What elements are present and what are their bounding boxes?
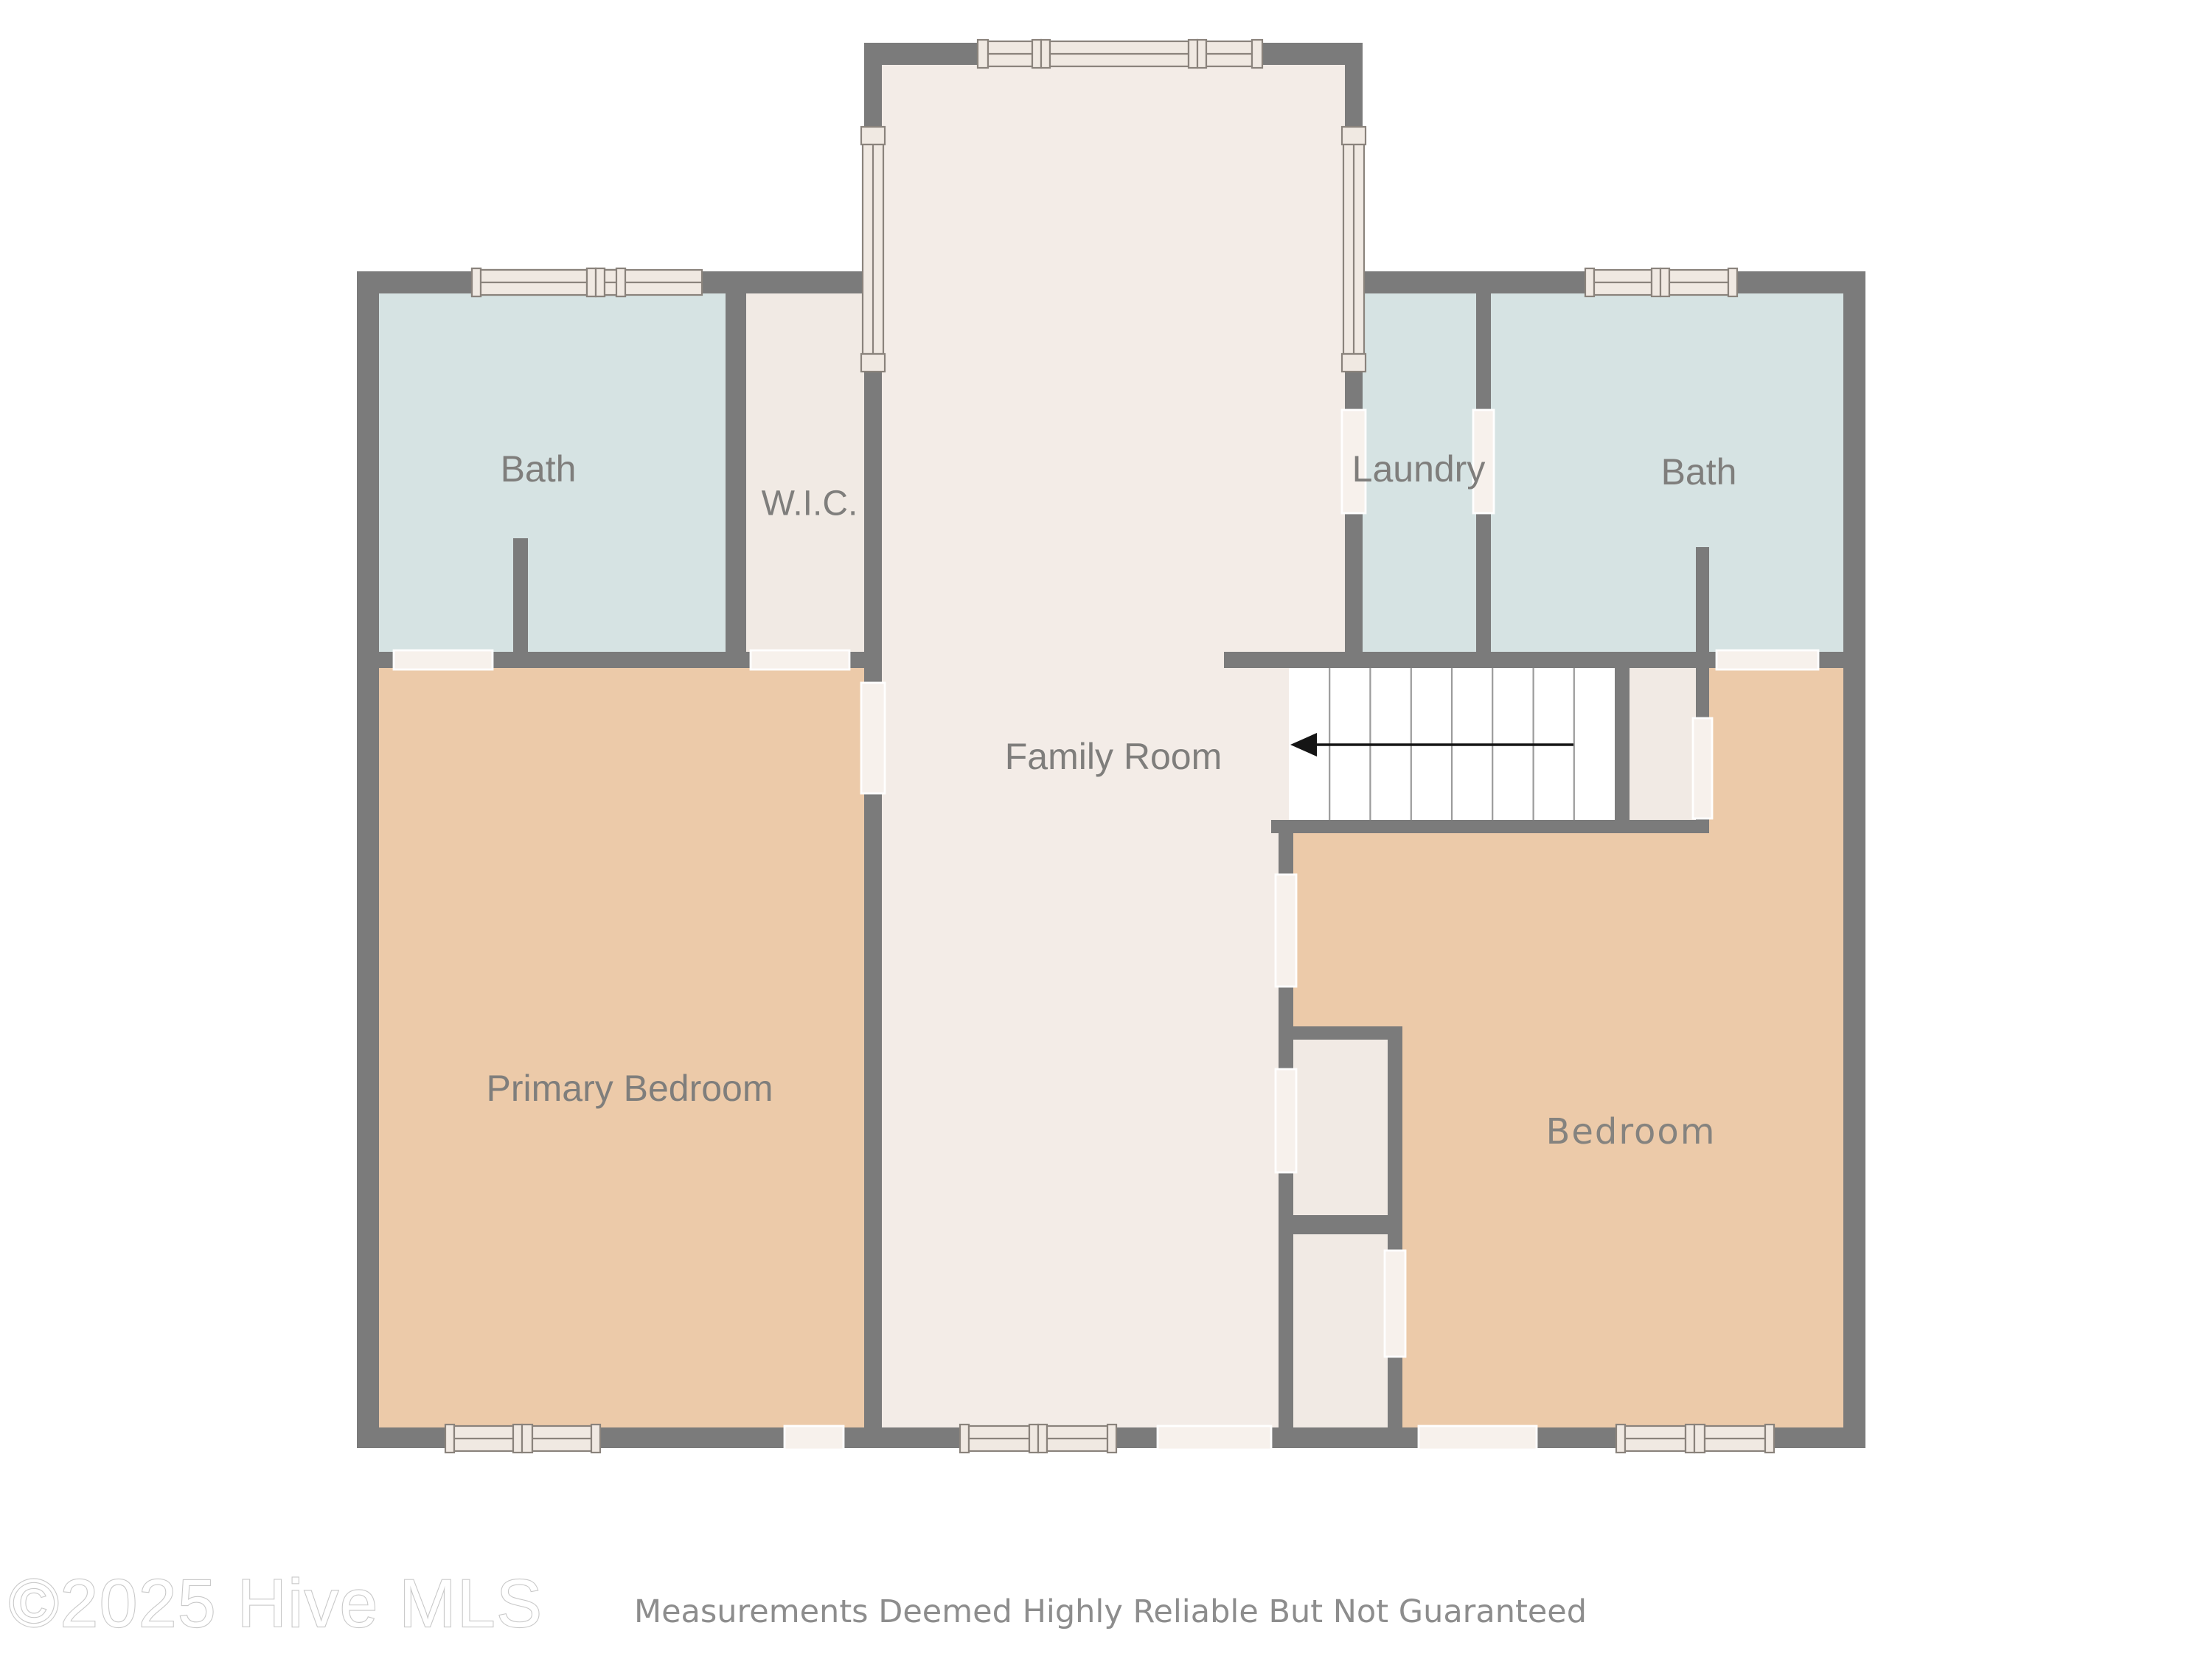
closet-upper-floor: [1293, 1040, 1388, 1215]
room-label-bath-right: Bath: [1661, 451, 1737, 493]
floor-plan-canvas: Bath W.I.C. Laundry Bath Family Room Pri…: [0, 0, 2212, 1659]
room-label-primary-bedroom: Primary Bedroom: [487, 1068, 773, 1109]
room-label-family-room: Family Room: [1005, 736, 1222, 777]
door-opening: [1385, 1251, 1405, 1357]
window: [445, 1425, 600, 1453]
wall-segment: [1696, 547, 1709, 652]
closet-lower-floor: [1293, 1234, 1388, 1427]
wall-segment: [1224, 652, 1717, 668]
wall-segment: [1271, 820, 1709, 833]
wall-segment: [1279, 1026, 1402, 1040]
bedroom-floor: [1709, 668, 1843, 1427]
window: [861, 127, 885, 372]
wic-floor: [746, 293, 864, 652]
wall-segment: [1279, 1215, 1402, 1234]
wall-segment: [1388, 1026, 1402, 1427]
floor-plan-page: Bath W.I.C. Laundry Bath Family Room Pri…: [0, 0, 2212, 1659]
door-opening: [1276, 1069, 1296, 1172]
mls-watermark: ©2025 Hive MLS: [9, 1566, 543, 1641]
door-opening: [785, 1426, 844, 1450]
wall-segment: [1843, 271, 1865, 1448]
wall-segment: [1818, 652, 1843, 668]
stair-landing-floor: [1630, 668, 1696, 820]
door-opening: [1276, 874, 1296, 987]
window: [1616, 1425, 1774, 1453]
door-opening: [394, 650, 493, 669]
door-opening: [1158, 1426, 1271, 1450]
measurement-disclaimer: Measurements Deemed Highly Reliable But …: [634, 1593, 1587, 1630]
window: [1585, 268, 1737, 296]
wall-segment: [726, 293, 746, 652]
wall-segment: [513, 538, 528, 652]
door-opening: [1717, 650, 1818, 669]
room-label-bedroom: Bedroom: [1545, 1111, 1716, 1152]
door-opening: [861, 683, 885, 793]
room-label-wic: W.I.C.: [762, 484, 858, 524]
wall-segment: [357, 271, 379, 1448]
room-label-laundry: Laundry: [1352, 448, 1486, 490]
window: [960, 1425, 1116, 1453]
wall-segment: [864, 293, 882, 1427]
bedroom-floor: [1293, 833, 1402, 1026]
door-opening: [1419, 1426, 1537, 1450]
primary-bedroom-floor: [379, 668, 864, 1427]
wall-segment: [1615, 668, 1630, 820]
window: [978, 40, 1262, 68]
door-opening: [1693, 718, 1712, 818]
door-opening: [751, 650, 849, 669]
room-label-bath-left: Bath: [501, 448, 577, 490]
window: [472, 268, 702, 296]
window: [1342, 127, 1366, 372]
